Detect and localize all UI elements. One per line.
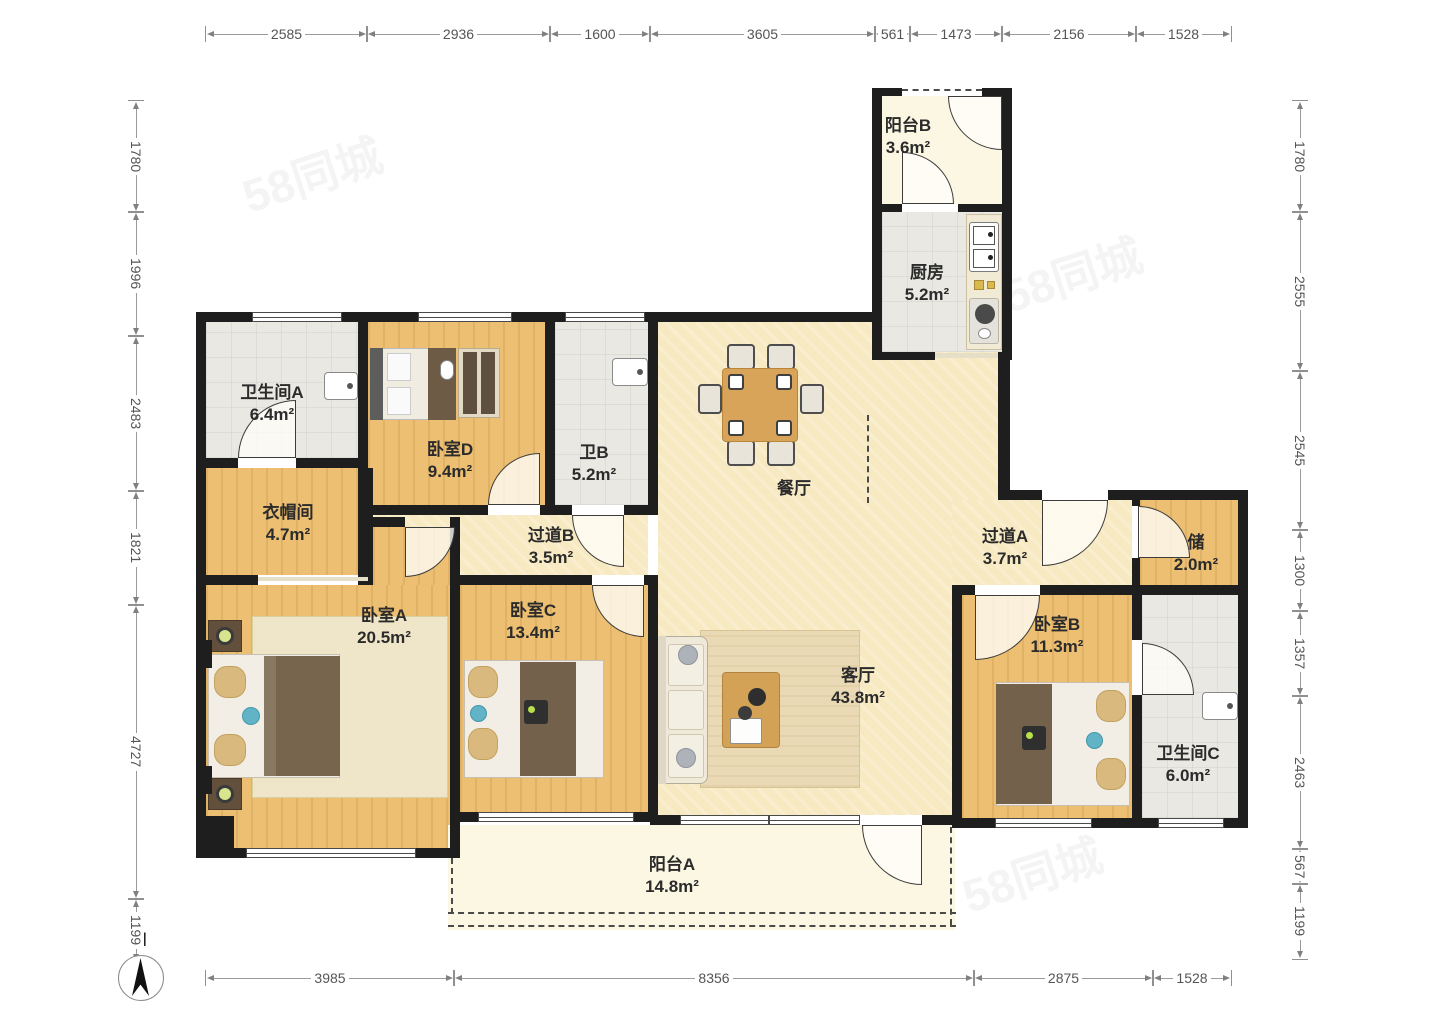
room-label-balcony-a: 阳台A 14.8m² (645, 854, 699, 898)
sink (975, 304, 995, 324)
threshold (935, 353, 998, 358)
floor-dining-extension (872, 352, 998, 500)
wall (1108, 490, 1248, 500)
pillow (468, 666, 498, 698)
wall (648, 322, 658, 515)
wall (460, 575, 592, 585)
window (995, 818, 1092, 828)
wall-pier (196, 816, 234, 850)
wall (998, 352, 1010, 500)
wall (998, 490, 1042, 500)
open-boundary (902, 89, 982, 91)
dining-chair (698, 384, 722, 414)
dining-chair (800, 384, 824, 414)
dim-value: 1199 (128, 912, 144, 948)
dim-top-8: 1528 (1135, 26, 1232, 42)
dim-top-6: 1473 (909, 26, 1003, 42)
dim-top-5: 561 (874, 26, 911, 42)
dim-value: 2936 (440, 26, 477, 42)
wall (952, 585, 962, 828)
dim-top-1: 2585 (205, 26, 368, 42)
watermark: 58同城 (233, 119, 390, 226)
dim-value: 1600 (581, 26, 618, 42)
wardrobe-door (481, 352, 495, 414)
place-setting (776, 420, 792, 436)
room-area: 6.0m² (1156, 765, 1219, 787)
dim-bottom-3: 2875 (973, 970, 1154, 986)
wall (648, 575, 658, 822)
room-area: 14.8m² (645, 876, 699, 898)
dining-chair (767, 440, 795, 466)
dim-value: 2545 (1292, 432, 1308, 469)
pillow (387, 353, 411, 381)
balcony-a-outline (451, 858, 453, 914)
dim-left-5: 4727 (128, 604, 144, 900)
sofa-pillow (678, 645, 698, 665)
wall (958, 204, 1012, 212)
room-label-bath-c: 卫生间C 6.0m² (1156, 743, 1219, 787)
pillow (214, 734, 246, 766)
wall (450, 517, 460, 858)
wall (373, 517, 405, 527)
dim-right-8: 1199 (1292, 883, 1308, 960)
dim-value: 2483 (128, 395, 144, 432)
balcony-a-outline (950, 827, 952, 925)
room-label-bed-b: 卧室B 11.3m² (1031, 614, 1084, 658)
dim-bottom-1: 3985 (205, 970, 455, 986)
dim-right-7: 567 (1292, 848, 1308, 885)
wall (1238, 490, 1248, 828)
indicator-dot (1026, 732, 1033, 739)
room-name: 卫B (572, 442, 616, 464)
dining-chair (727, 344, 755, 370)
room-name: 过道B (528, 525, 574, 547)
lamp (216, 785, 234, 803)
room-name: 卫生间C (1156, 743, 1219, 765)
wall (358, 322, 368, 468)
dim-top-2: 2936 (366, 26, 551, 42)
coffee-table-tray (730, 718, 762, 744)
deco-pillow (440, 360, 454, 380)
bed-d-headboard (370, 348, 383, 420)
room-area: 2.0m² (1174, 554, 1218, 576)
window (478, 812, 634, 822)
pillow (387, 387, 411, 415)
dim-value: 3605 (744, 26, 781, 42)
room-label-bath-b: 卫B 5.2m² (572, 442, 616, 486)
wall (872, 88, 882, 360)
dim-value: 2875 (1045, 970, 1082, 986)
dim-left-2: 1996 (128, 211, 144, 337)
floor-plan-canvas: 58同城 58同城 58同城 58同城 58同城 (0, 0, 1440, 1024)
kitchen-item (987, 281, 995, 289)
dim-value: 2156 (1050, 26, 1087, 42)
watermark: 58同城 (953, 819, 1110, 926)
place-setting (728, 420, 744, 436)
round-pillow (242, 707, 260, 725)
room-label-dining: 餐厅 (777, 478, 811, 500)
room-label-kitchen: 厨房 5.2m² (905, 262, 949, 306)
dim-value: 567 (1292, 852, 1308, 881)
dim-right-1: 1780 (1292, 100, 1308, 213)
sliding-door-divider (768, 815, 770, 825)
wall (982, 88, 1012, 96)
bed-a-blanket-fold (264, 656, 276, 776)
dim-top-4: 3605 (649, 26, 876, 42)
room-name: 衣帽间 (263, 502, 314, 524)
wall (872, 352, 935, 360)
window (418, 312, 512, 322)
room-label-cloakroom: 衣帽间 4.7m² (263, 502, 314, 546)
room-label-bed-a: 卧室A 20.5m² (357, 605, 411, 649)
wardrobe-door (463, 352, 477, 414)
wall (358, 468, 373, 585)
wall (296, 458, 368, 468)
open-boundary (867, 415, 869, 503)
place-setting (776, 374, 792, 390)
dim-right-3: 2545 (1292, 370, 1308, 531)
washbasin-drain (1227, 703, 1233, 709)
balcony-a-outline (448, 925, 956, 927)
room-name: 卧室A (357, 605, 411, 627)
dim-left-4: 1821 (128, 490, 144, 606)
dim-value: 1780 (1292, 138, 1308, 175)
wall (922, 815, 962, 825)
watermark: 58同城 (993, 219, 1150, 326)
room-label-hall-b: 过道B 3.5m² (528, 525, 574, 569)
dim-right-4: 1300 (1292, 529, 1308, 612)
room-name: 阳台A (645, 854, 699, 876)
wall (196, 575, 258, 585)
pillow (468, 728, 498, 760)
dim-left-3: 2483 (128, 335, 144, 492)
room-name: 储 (1174, 532, 1218, 554)
room-area: 11.3m² (1031, 636, 1084, 658)
dim-value: 1357 (1292, 635, 1308, 672)
pillow (214, 666, 246, 698)
dim-value: 2585 (268, 26, 305, 42)
dim-value: 1300 (1292, 552, 1308, 589)
room-label-hall-a: 过道A 3.7m² (982, 526, 1028, 570)
room-name: 卧室D (427, 439, 473, 461)
dim-value: 2555 (1292, 273, 1308, 310)
room-label-storage: 储 2.0m² (1174, 532, 1218, 576)
room-area: 5.2m² (572, 464, 616, 486)
wall (872, 88, 902, 96)
window (252, 312, 342, 322)
dim-bottom-4: 1528 (1152, 970, 1232, 986)
room-label-bath-a: 卫生间A 6.4m² (240, 382, 303, 426)
room-label-balcony-b: 阳台B 3.6m² (885, 115, 931, 159)
dim-value: 8356 (695, 970, 732, 986)
lamp (216, 627, 234, 645)
pillow (1096, 758, 1126, 790)
room-area: 13.4m² (506, 622, 560, 644)
dim-value: 1473 (937, 26, 974, 42)
wall-pier (196, 640, 212, 668)
room-label-bed-d: 卧室D 9.4m² (427, 439, 473, 483)
dim-right-6: 2463 (1292, 695, 1308, 850)
wall (624, 505, 658, 515)
wall-pier (196, 766, 212, 794)
sofa-pillow (676, 748, 696, 768)
room-name: 卧室B (1031, 614, 1084, 636)
wall (872, 204, 902, 212)
dim-top-7: 2156 (1001, 26, 1137, 42)
dim-value: 1528 (1165, 26, 1202, 42)
faucet (978, 328, 991, 339)
room-area: 4.7m² (263, 524, 314, 546)
dining-chair (727, 440, 755, 466)
dim-value: 561 (878, 26, 907, 42)
bed-d-blanket (428, 348, 456, 420)
wall (196, 458, 238, 468)
window (246, 848, 416, 858)
sofa-cushion (668, 690, 704, 730)
dim-value: 1821 (128, 529, 144, 566)
room-name: 卫生间A (240, 382, 303, 404)
sliding-door (680, 815, 860, 825)
room-area: 3.5m² (528, 547, 574, 569)
room-area: 43.8m² (831, 687, 885, 709)
dining-chair (767, 344, 795, 370)
balcony-a-outline (448, 912, 956, 914)
burner-dot (988, 255, 993, 260)
room-area: 20.5m² (357, 627, 411, 649)
wall (540, 505, 555, 515)
dim-value: 1528 (1173, 970, 1210, 986)
threshold (258, 577, 368, 581)
wall (1132, 695, 1142, 828)
kettle (738, 706, 752, 720)
wall (545, 322, 555, 505)
bedside-console (1022, 726, 1046, 750)
room-area: 5.2m² (905, 284, 949, 306)
dim-right-5: 1357 (1292, 610, 1308, 697)
place-setting (728, 374, 744, 390)
room-name: 餐厅 (777, 478, 811, 500)
room-name: 阳台B (885, 115, 931, 137)
dim-left-1: 1780 (128, 100, 144, 213)
indicator-dot (528, 706, 535, 713)
wall (373, 505, 488, 515)
dim-top-3: 1600 (549, 26, 651, 42)
dim-value: 1996 (128, 255, 144, 292)
room-area: 9.4m² (427, 461, 473, 483)
washbasin-drain (347, 383, 353, 389)
dim-value: 4727 (128, 733, 144, 770)
room-label-bed-c: 卧室C 13.4m² (506, 600, 560, 644)
room-area: 3.6m² (885, 137, 931, 159)
dim-value: 1199 (1292, 903, 1308, 939)
round-pillow (1086, 732, 1103, 749)
room-name: 客厅 (831, 665, 885, 687)
dim-value: 2463 (1292, 754, 1308, 791)
round-pillow (470, 705, 487, 722)
wall (1040, 585, 1248, 595)
window (1158, 818, 1224, 828)
wall (1002, 88, 1012, 360)
window (565, 312, 645, 322)
dim-bottom-2: 8356 (453, 970, 975, 986)
room-name: 过道A (982, 526, 1028, 548)
wall (1132, 595, 1142, 640)
dim-left-6: 1199 (128, 898, 144, 963)
pillow (1096, 690, 1126, 722)
kitchen-item (974, 280, 984, 290)
room-area: 6.4m² (240, 404, 303, 426)
burner-dot (988, 232, 993, 237)
dim-value: 3985 (311, 970, 348, 986)
room-name: 厨房 (905, 262, 949, 284)
room-area: 3.7m² (982, 548, 1028, 570)
kettle (748, 688, 766, 706)
bedside-console (524, 700, 548, 724)
room-name: 卧室C (506, 600, 560, 622)
dim-right-2: 2555 (1292, 211, 1308, 372)
washbasin-drain (637, 369, 643, 375)
dim-value: 1780 (128, 138, 144, 175)
room-label-living: 客厅 43.8m² (831, 665, 885, 709)
wall (555, 505, 572, 515)
